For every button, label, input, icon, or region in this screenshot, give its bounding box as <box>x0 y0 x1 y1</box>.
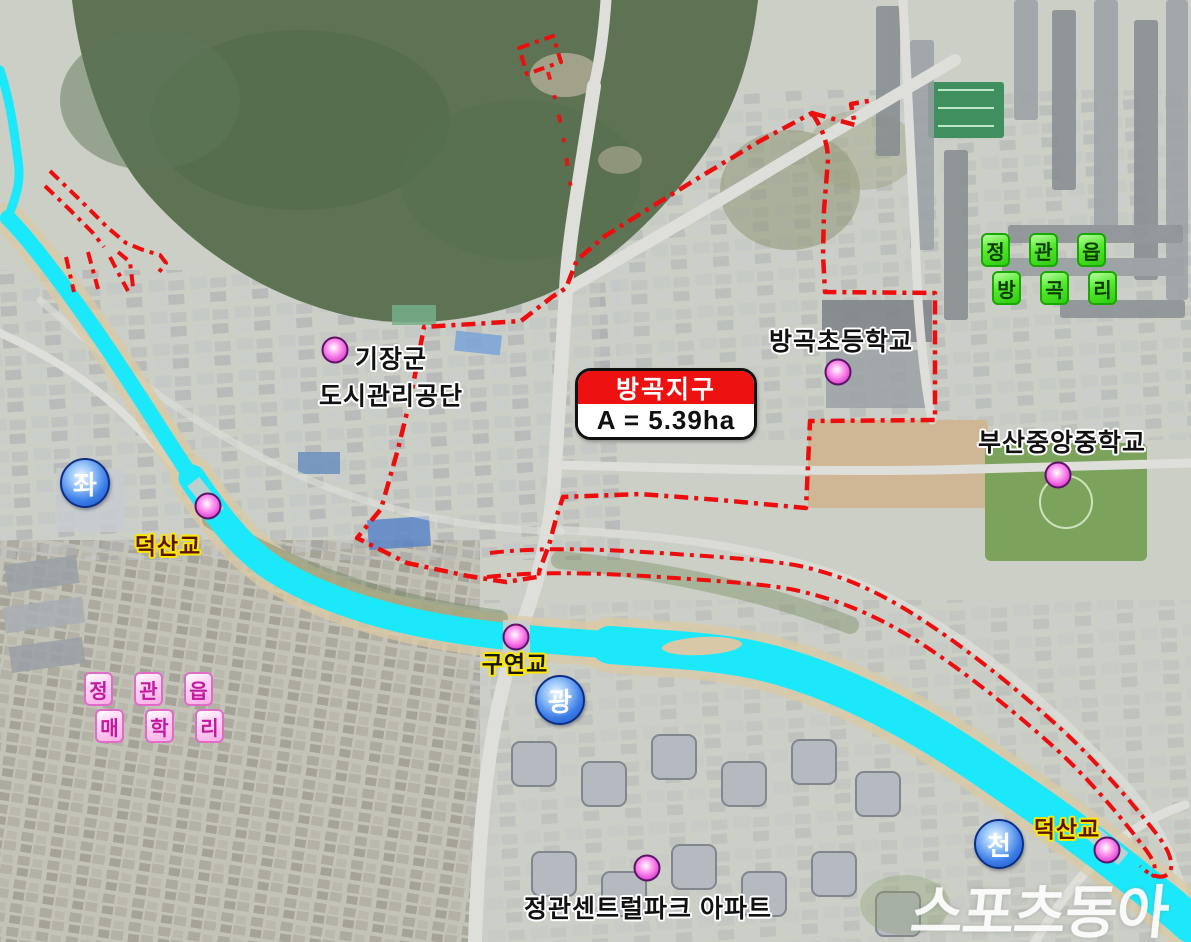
poi-marker-centralpark-apt <box>634 855 661 882</box>
poi-marker-gijang <box>322 337 349 364</box>
school-dirt-field <box>808 420 988 508</box>
region-char: 방 <box>992 271 1021 305</box>
district-title-box: 방곡지구 A = 5.39ha <box>575 368 757 440</box>
region-char: 리 <box>195 709 224 743</box>
region-char: 관 <box>1029 233 1058 267</box>
aerial-map-graphic <box>0 0 1191 942</box>
district-name: 방곡지구 <box>578 371 754 404</box>
district-area: A = 5.39ha <box>578 404 754 437</box>
place-label-busan-jungang-middle: 부산중앙중학교 <box>978 423 1146 459</box>
region-label-banggok-row1: 정 관 읍 <box>981 233 1106 267</box>
region-char: 학 <box>145 709 174 743</box>
stream-badge-jwa: 좌 <box>60 458 110 508</box>
place-label-line: 도시관리공단 <box>319 377 463 413</box>
region-label-maehak-row2: 매 학 리 <box>95 709 224 743</box>
region-char: 곡 <box>1040 271 1069 305</box>
region-char: 매 <box>95 709 124 743</box>
poi-marker-banggok-elementary <box>825 359 852 386</box>
map-canvas: 방곡지구 A = 5.39ha 정 관 읍 방 곡 리 정 관 읍 매 학 리 … <box>0 0 1191 942</box>
bridge-label-deoksan-se: 덕산교 <box>1034 810 1100 844</box>
region-char: 읍 <box>1077 233 1106 267</box>
stream-badge-gwang: 광 <box>535 675 585 725</box>
place-label-banggok-elementary: 방곡초등학교 <box>769 322 913 358</box>
region-label-maehak-row1: 정 관 읍 <box>84 672 213 706</box>
bridge-marker-deoksan-se <box>1094 837 1121 864</box>
region-char: 관 <box>134 672 163 706</box>
poi-marker-busan-jungang-middle <box>1045 462 1072 489</box>
bridge-marker-guyeon <box>503 624 530 651</box>
place-label-line: 기장군 <box>355 346 427 374</box>
region-char: 정 <box>84 672 113 706</box>
place-label-centralpark-apt: 정관센트럴파크 아파트 <box>524 889 772 925</box>
bridge-label-deoksan-nw: 덕산교 <box>135 527 201 561</box>
stream-badge-cheon: 천 <box>974 819 1024 869</box>
region-char: 리 <box>1088 271 1117 305</box>
region-label-banggok-row2: 방 곡 리 <box>992 271 1117 305</box>
region-char: 읍 <box>184 672 213 706</box>
watermark-logo: 스포츠동아 <box>907 867 1173 942</box>
bridge-marker-deoksan-nw <box>195 493 222 520</box>
region-char: 정 <box>981 233 1010 267</box>
